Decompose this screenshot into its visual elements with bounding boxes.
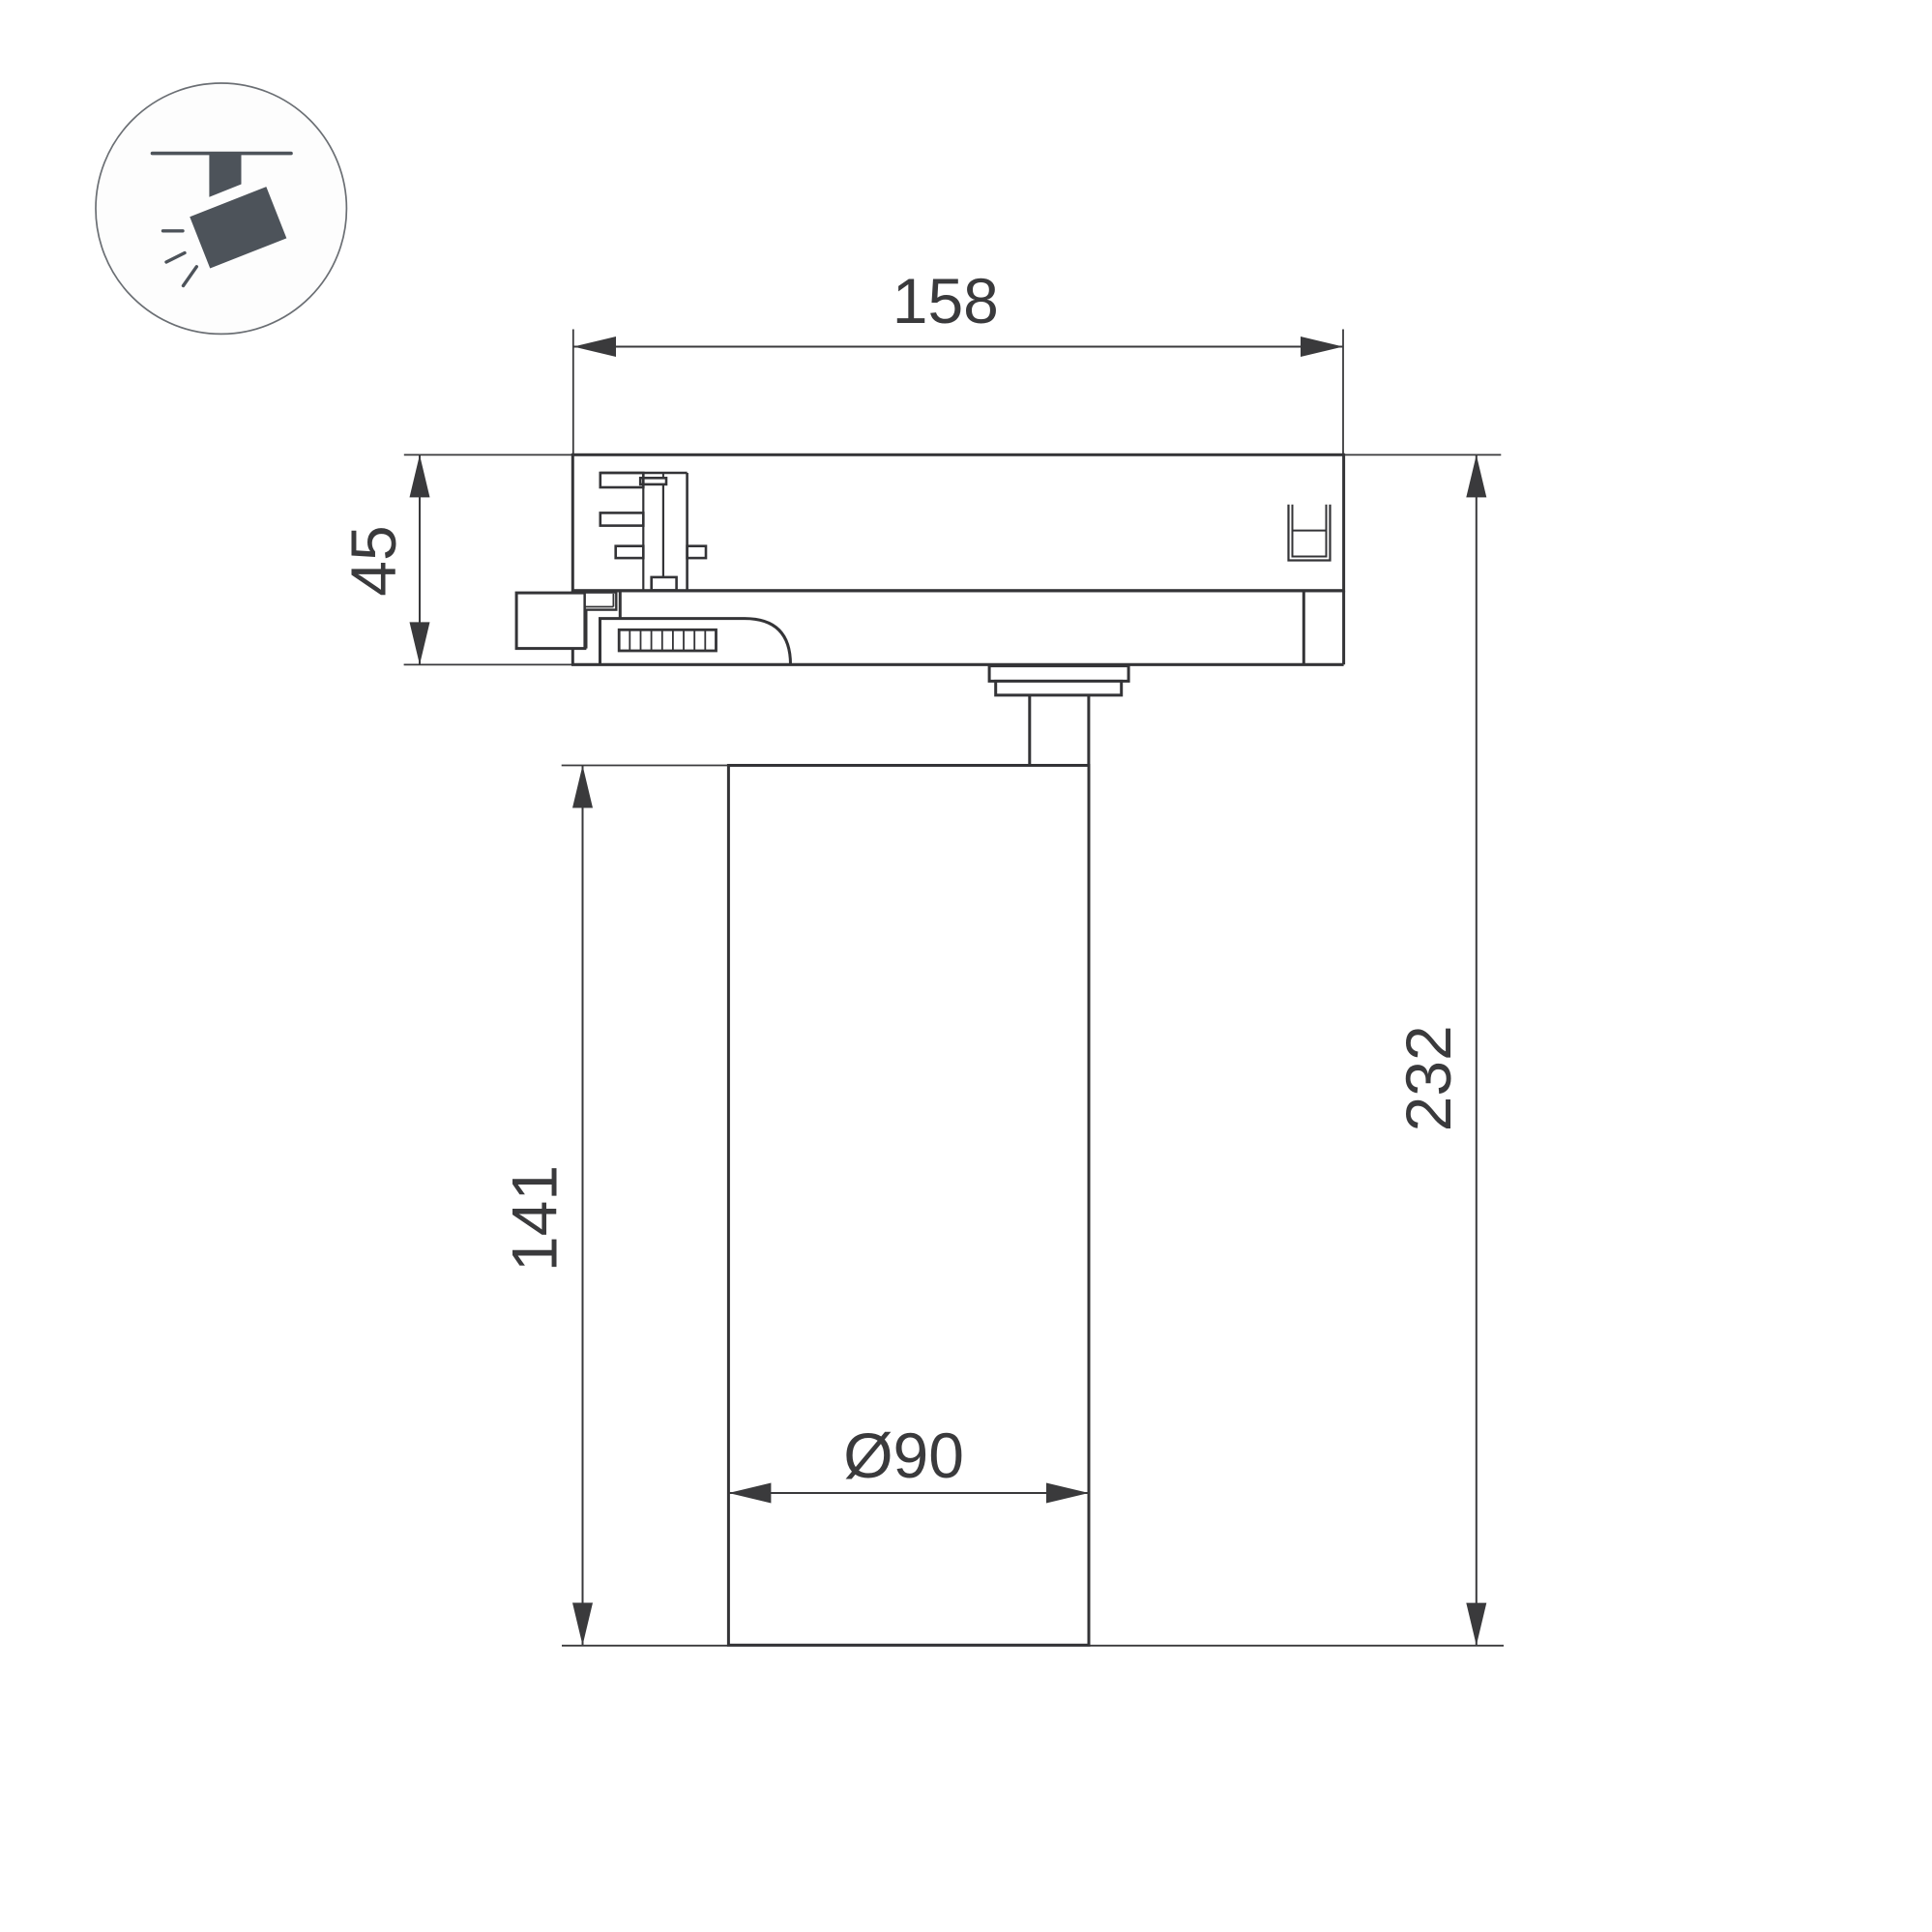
svg-text:Ø90: Ø90 [843, 1420, 964, 1491]
svg-text:158: 158 [893, 265, 999, 337]
svg-text:45: 45 [337, 525, 409, 596]
svg-text:141: 141 [498, 1165, 570, 1272]
svg-text:232: 232 [1392, 1025, 1464, 1131]
